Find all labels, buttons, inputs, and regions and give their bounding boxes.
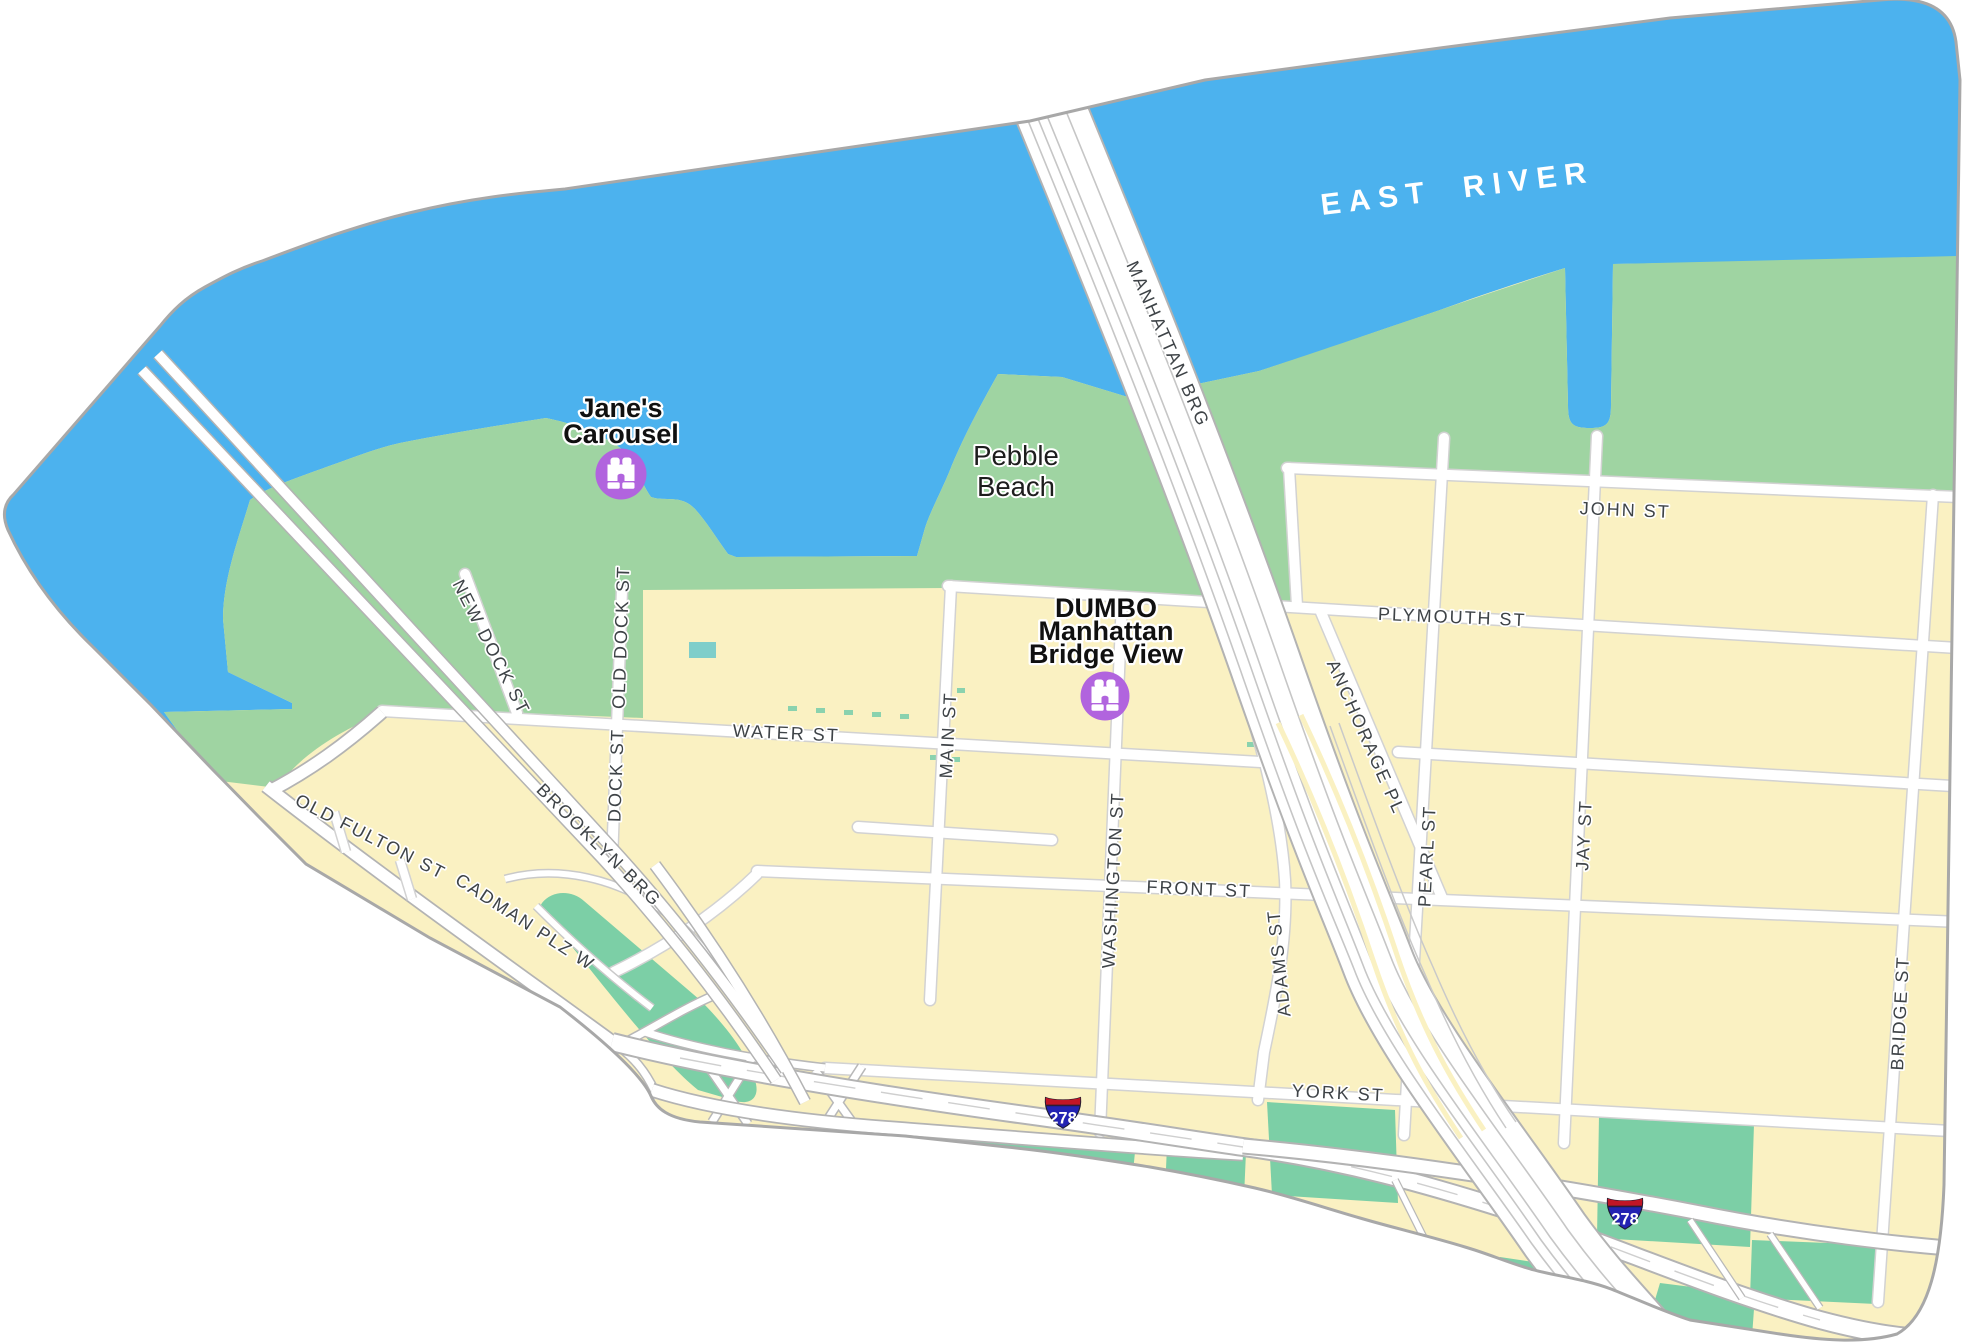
svg-text:Pebble: Pebble	[973, 440, 1059, 471]
svg-text:JAY ST: JAY ST	[1572, 799, 1596, 871]
svg-text:Carousel: Carousel	[563, 419, 679, 449]
svg-text:278: 278	[1049, 1110, 1077, 1128]
svg-text:Bridge View: Bridge View	[1029, 639, 1184, 669]
svg-text:JOHN ST: JOHN ST	[1579, 498, 1671, 522]
svg-text:DOCK ST: DOCK ST	[604, 728, 627, 823]
svg-text:Beach: Beach	[977, 471, 1055, 502]
svg-text:278: 278	[1611, 1211, 1639, 1229]
